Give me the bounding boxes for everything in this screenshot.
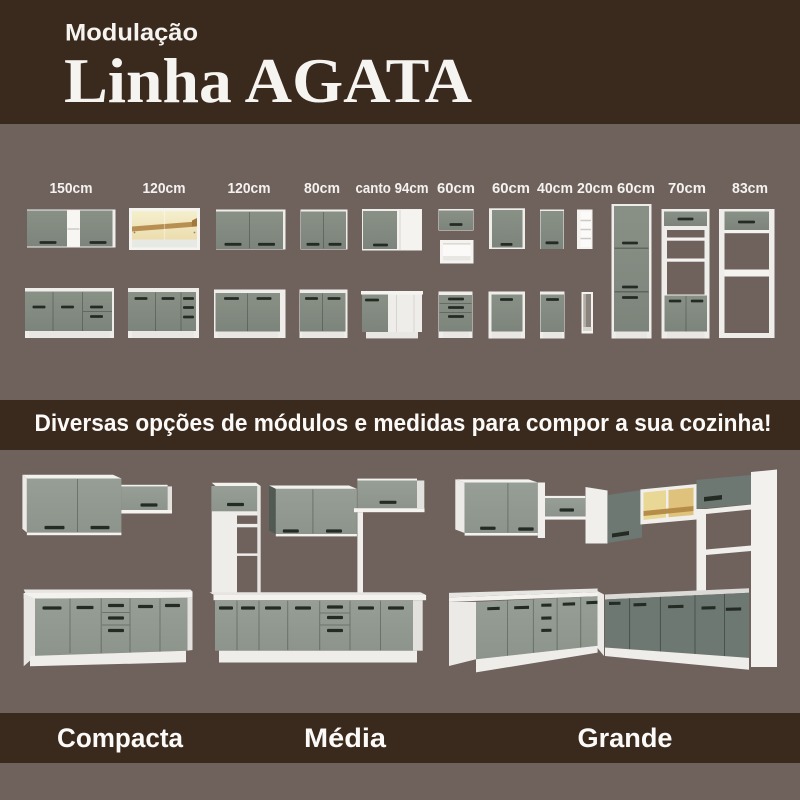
svg-text:150cm: 150cm [50, 180, 93, 197]
svg-text:Modulação: Modulação [65, 20, 198, 47]
svg-text:canto 94cm: canto 94cm [356, 180, 429, 197]
svg-text:83cm: 83cm [732, 180, 768, 197]
svg-text:Diversas opções de módulos e m: Diversas opções de módulos e medidas par… [35, 410, 772, 437]
svg-text:Grande: Grande [578, 723, 673, 753]
svg-text:80cm: 80cm [304, 180, 340, 197]
svg-text:Média: Média [304, 723, 387, 753]
svg-text:60cm: 60cm [492, 180, 530, 197]
svg-text:Compacta: Compacta [57, 723, 184, 753]
svg-text:20cm: 20cm [577, 180, 613, 197]
svg-text:60cm: 60cm [437, 180, 475, 197]
svg-text:Linha AGATA: Linha AGATA [64, 45, 472, 116]
svg-text:70cm: 70cm [668, 180, 706, 197]
svg-text:40cm: 40cm [537, 180, 573, 197]
svg-text:60cm: 60cm [617, 180, 655, 197]
svg-text:120cm: 120cm [143, 180, 186, 197]
svg-text:120cm: 120cm [228, 180, 271, 197]
